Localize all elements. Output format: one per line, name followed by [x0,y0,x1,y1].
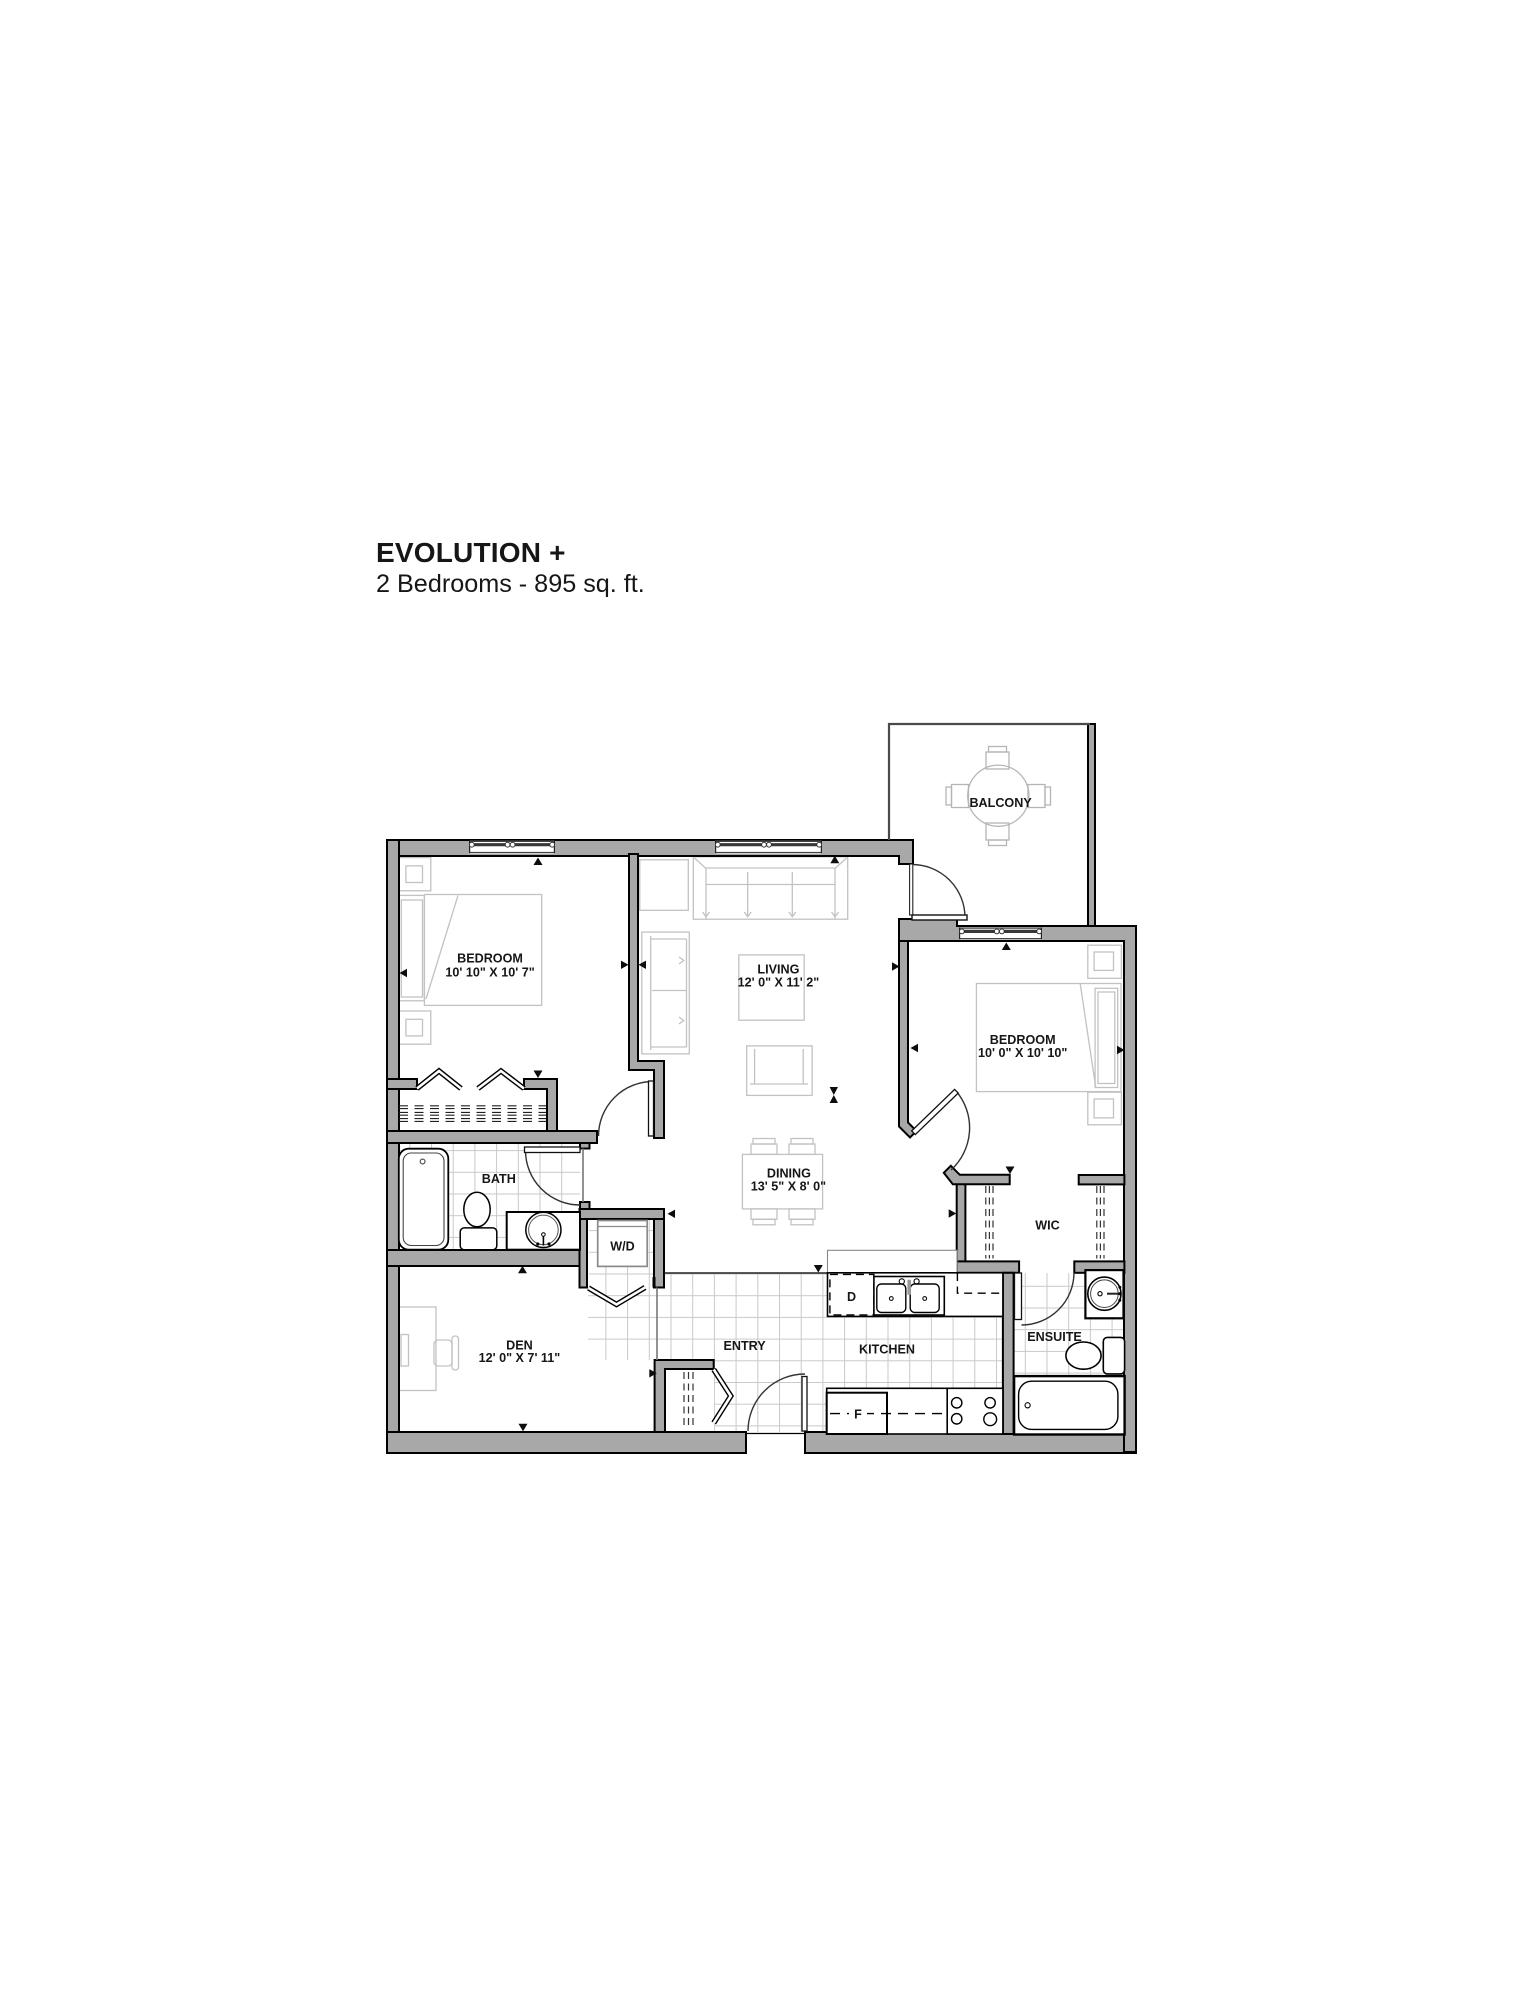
svg-text:W/D: W/D [610,1240,634,1254]
svg-text:BALCONY: BALCONY [969,796,1032,810]
svg-text:10' 0" X 10' 10": 10' 0" X 10' 10" [978,1046,1067,1060]
svg-text:12' 0" X 7' 11": 12' 0" X 7' 11" [479,1351,561,1365]
svg-text:D: D [847,1290,856,1304]
svg-text:2 Bedrooms - 895 sq. ft.: 2 Bedrooms - 895 sq. ft. [376,570,645,598]
svg-text:10' 10" X 10' 7": 10' 10" X 10' 7" [445,966,534,980]
svg-text:F: F [854,1408,862,1422]
svg-text:BEDROOM: BEDROOM [457,952,523,966]
svg-text:BEDROOM: BEDROOM [990,1033,1056,1047]
svg-text:13' 5" X 8' 0": 13' 5" X 8' 0" [751,1180,826,1194]
svg-text:LIVING: LIVING [757,963,799,977]
svg-text:KITCHEN: KITCHEN [859,1343,915,1357]
svg-text:12' 0" X 11' 2": 12' 0" X 11' 2" [738,976,820,990]
svg-text:EVOLUTION +: EVOLUTION + [376,537,566,568]
svg-text:BATH: BATH [482,1172,516,1186]
svg-text:WIC: WIC [1035,1219,1059,1233]
svg-text:ENSUITE: ENSUITE [1027,1330,1082,1344]
svg-text:ENTRY: ENTRY [723,1339,766,1353]
